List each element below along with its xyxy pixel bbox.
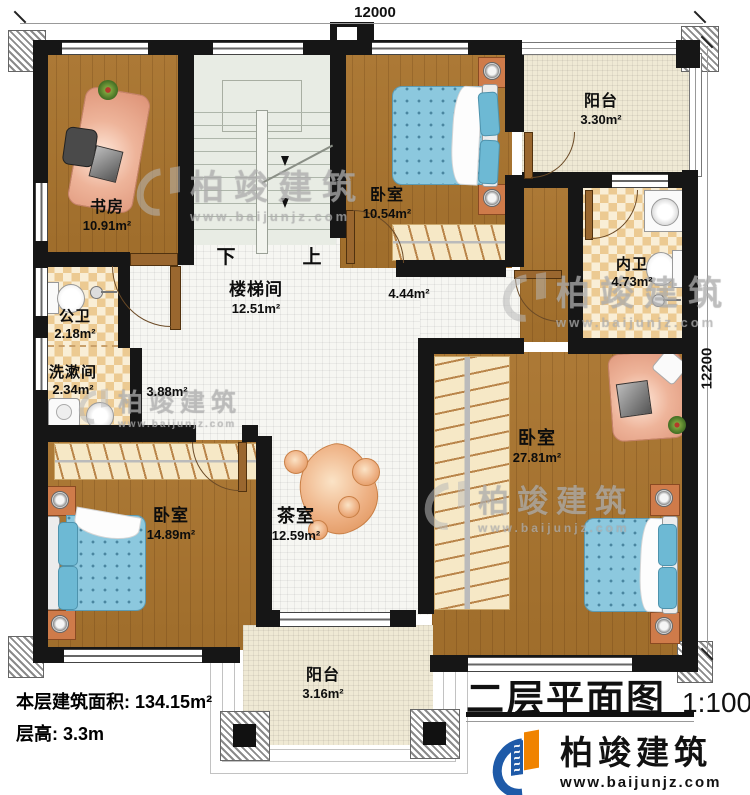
pillow (478, 140, 500, 185)
room-label-public-bath: 公卫 2.18m² (40, 308, 110, 342)
floor-area-label: 本层建筑面积: (16, 692, 130, 712)
pillow (658, 567, 677, 609)
lamp-icon (655, 489, 673, 507)
shower-arm (663, 299, 681, 301)
plant-icon (668, 416, 686, 434)
pillow (58, 522, 78, 566)
stone (352, 458, 380, 486)
nightstand (650, 484, 680, 516)
closet (434, 356, 510, 610)
floor-height-line: 层高: 3.3m (16, 720, 104, 746)
stone (338, 496, 360, 518)
floor-height-label: 层高: (16, 724, 58, 744)
balcony-column-core (233, 724, 256, 747)
door-leaf (170, 266, 181, 330)
room-label-bedroom-left: 卧室 14.89m² (127, 506, 215, 543)
stairs-up-label: 上 (298, 246, 326, 269)
nightstand (46, 610, 76, 640)
floor-area-line: 本层建筑面积: 134.15m² (16, 688, 212, 714)
room-label-balcony-top: 阳台 3.30m² (558, 92, 644, 127)
window (64, 649, 202, 663)
floor-plan-canvas: 12000 12200 (0, 0, 750, 795)
corridor-area-label: 4.44m² (379, 286, 439, 302)
room-label-balcony-bottom: 阳台 3.16m² (279, 666, 367, 701)
pillow (658, 524, 677, 566)
stairs-direction-arrow (281, 198, 289, 208)
room-label-washroom: 洗漱间 2.34m² (28, 364, 118, 398)
lamp-icon (655, 617, 673, 635)
wall (242, 425, 258, 442)
floor-area-value: 134.15m² (135, 692, 212, 712)
bath-divider-dashed (48, 345, 118, 347)
company-url: www.baijunjz.com (560, 774, 721, 791)
window (612, 174, 668, 188)
window (280, 612, 390, 627)
wall (570, 338, 684, 354)
window (35, 183, 48, 241)
closet (392, 224, 508, 261)
dimension-right-value: 12200 (699, 334, 716, 404)
company-name: 柏竣建筑 (560, 726, 721, 774)
washing-machine-drum (56, 404, 72, 420)
nightstand (650, 612, 680, 644)
room-label-inner-bath: 内卫 4.73m² (596, 256, 668, 290)
balcony-column-core (423, 722, 446, 745)
room-label-study: 书房 10.91m² (57, 198, 157, 233)
monitor-icon (616, 380, 652, 418)
wall (676, 40, 700, 68)
company-logo: 柏竣建筑 www.baijunjz.com (494, 726, 721, 791)
floor-height-value: 3.3m (63, 724, 104, 744)
lamp-icon (51, 615, 69, 633)
title-underline-thick (466, 712, 694, 717)
window (62, 42, 148, 55)
window (213, 42, 303, 55)
dimension-top-value: 12000 (330, 4, 420, 21)
company-logo-icon (494, 729, 550, 789)
nightstand (46, 486, 76, 516)
dimension-tick (14, 11, 27, 24)
room-label-bedroom-top: 卧室 10.54m² (349, 186, 425, 221)
chimney-notch (337, 27, 357, 40)
wall (33, 252, 130, 267)
room-label-tea-room: 茶室 12.59m² (258, 506, 334, 544)
nightstand (478, 184, 506, 215)
shower-arm (101, 291, 117, 293)
door-leaf (130, 253, 178, 266)
title-underline-thin (466, 721, 694, 722)
wall (396, 260, 506, 277)
wall (505, 55, 524, 132)
wall (505, 175, 524, 267)
wall (33, 425, 196, 442)
balcony-railing (689, 53, 702, 177)
dimension-tick (694, 11, 707, 24)
wall (390, 610, 416, 627)
room-label-bedroom-master: 卧室 27.81m² (491, 428, 583, 466)
plant-icon (98, 80, 118, 100)
lamp-icon (483, 62, 501, 80)
wall (568, 172, 583, 354)
wall (418, 338, 434, 614)
stone (284, 450, 308, 474)
lamp-icon (51, 491, 69, 509)
balcony-railing (520, 42, 680, 55)
dimension-line-top (20, 23, 703, 24)
stairs-direction-arrow (281, 156, 289, 166)
wall (256, 610, 280, 627)
window (372, 42, 468, 55)
room-label-stairwell: 楼梯间 12.51m² (198, 280, 314, 317)
hall-area-label: 3.88m² (137, 384, 197, 400)
pillow (58, 566, 78, 610)
stairs-down-label: 下 (212, 246, 240, 269)
corridor-floor (420, 270, 522, 342)
pillow (477, 91, 500, 136)
door-leaf (238, 442, 247, 492)
wall (178, 55, 194, 265)
lamp-icon (483, 189, 501, 207)
sink-icon (651, 198, 679, 226)
